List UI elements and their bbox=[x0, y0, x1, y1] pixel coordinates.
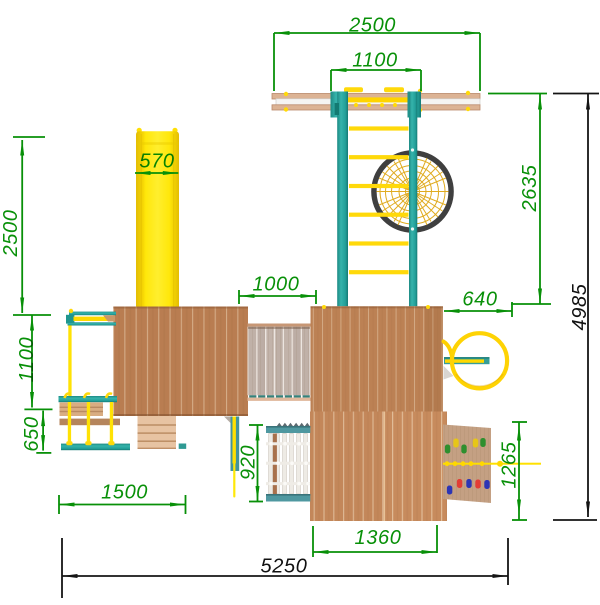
svg-text:920: 920 bbox=[238, 445, 260, 480]
svg-text:2635: 2635 bbox=[519, 164, 541, 212]
svg-text:1360: 1360 bbox=[355, 527, 402, 549]
svg-text:5250: 5250 bbox=[261, 556, 308, 578]
svg-text:640: 640 bbox=[462, 289, 497, 311]
svg-text:2500: 2500 bbox=[348, 14, 396, 36]
svg-text:4985: 4985 bbox=[569, 283, 591, 330]
svg-text:1265: 1265 bbox=[498, 441, 520, 488]
svg-text:1500: 1500 bbox=[101, 482, 148, 504]
svg-text:2500: 2500 bbox=[0, 210, 22, 258]
svg-text:570: 570 bbox=[139, 151, 174, 173]
svg-text:1100: 1100 bbox=[352, 50, 397, 72]
svg-text:650: 650 bbox=[21, 416, 43, 451]
svg-text:1100: 1100 bbox=[16, 337, 38, 382]
svg-text:1000: 1000 bbox=[253, 274, 300, 296]
